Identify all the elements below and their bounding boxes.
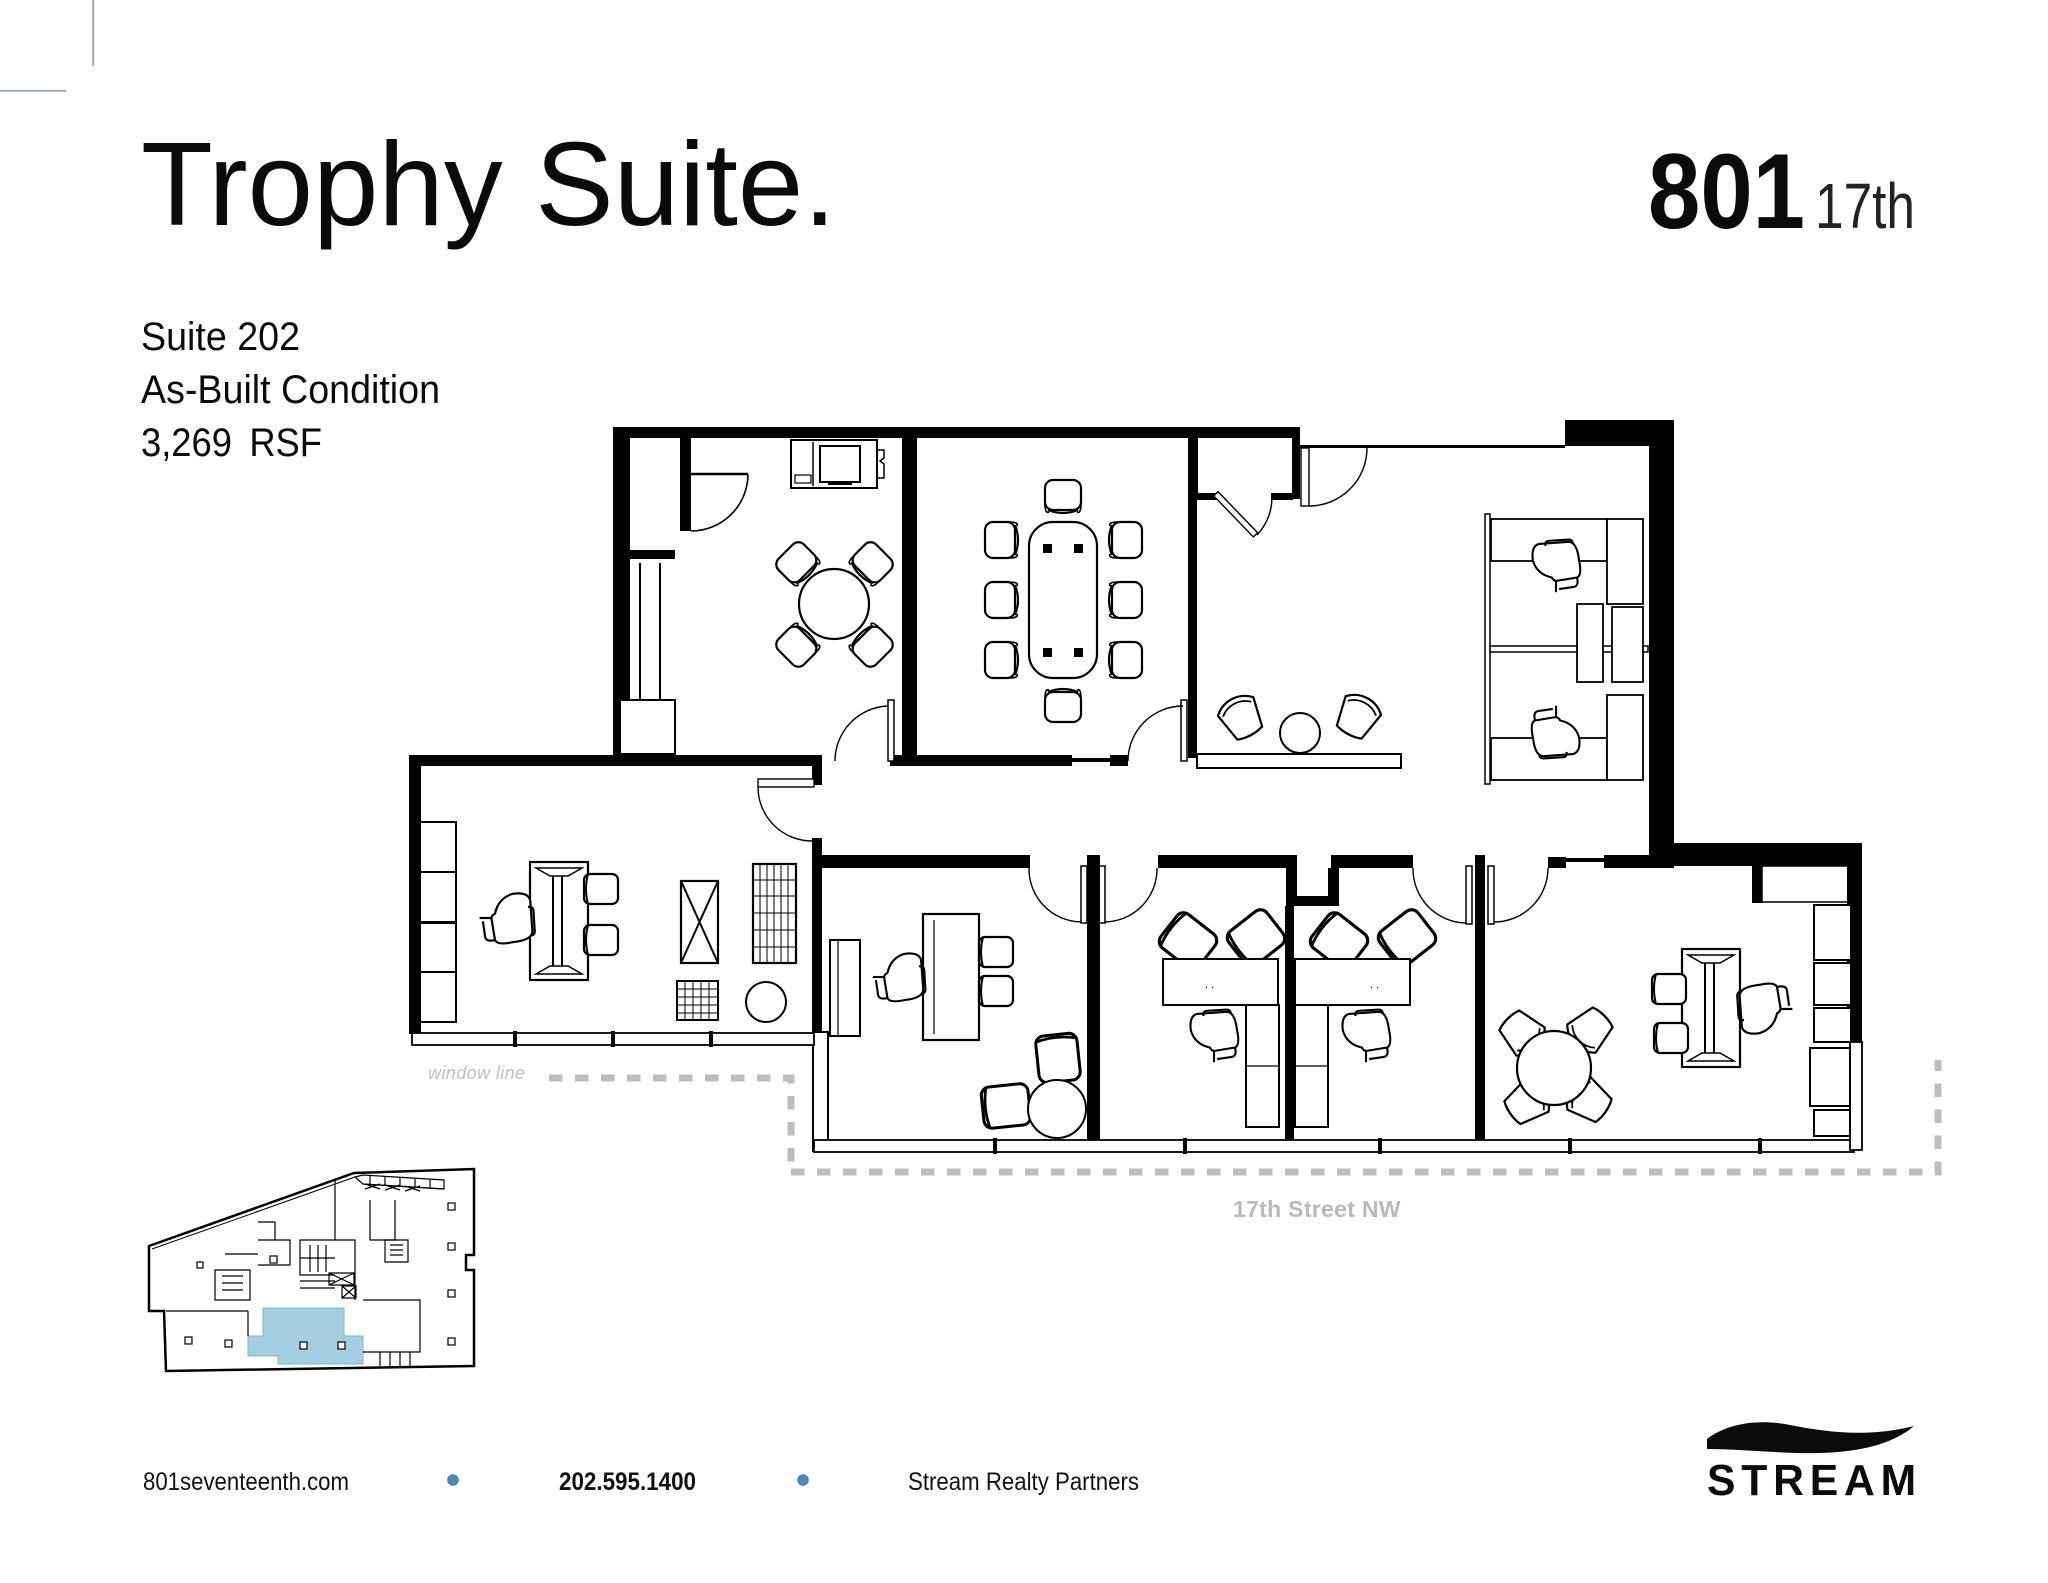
svg-text:Suite 202: Suite 202	[141, 315, 300, 359]
svg-text:STREAM: STREAM	[1707, 1456, 1922, 1505]
svg-text:3,269 RSF: 3,269 RSF	[141, 421, 322, 465]
svg-text:17th Street NW: 17th Street NW	[1233, 1196, 1401, 1222]
svg-text:. .: . .	[1205, 979, 1214, 991]
svg-text:202.595.1400: 202.595.1400	[559, 1468, 696, 1496]
svg-text:801: 801	[1648, 131, 1805, 251]
svg-text:Trophy Suite.: Trophy Suite.	[141, 118, 836, 251]
svg-text:Stream Realty Partners: Stream Realty Partners	[908, 1468, 1139, 1496]
svg-text:. .: . .	[1370, 979, 1379, 991]
svg-text:801seventeenth.com: 801seventeenth.com	[143, 1468, 349, 1496]
svg-text:17th: 17th	[1815, 170, 1915, 242]
svg-text:As-Built Condition: As-Built Condition	[141, 368, 440, 412]
svg-text:window line: window line	[428, 1063, 525, 1083]
